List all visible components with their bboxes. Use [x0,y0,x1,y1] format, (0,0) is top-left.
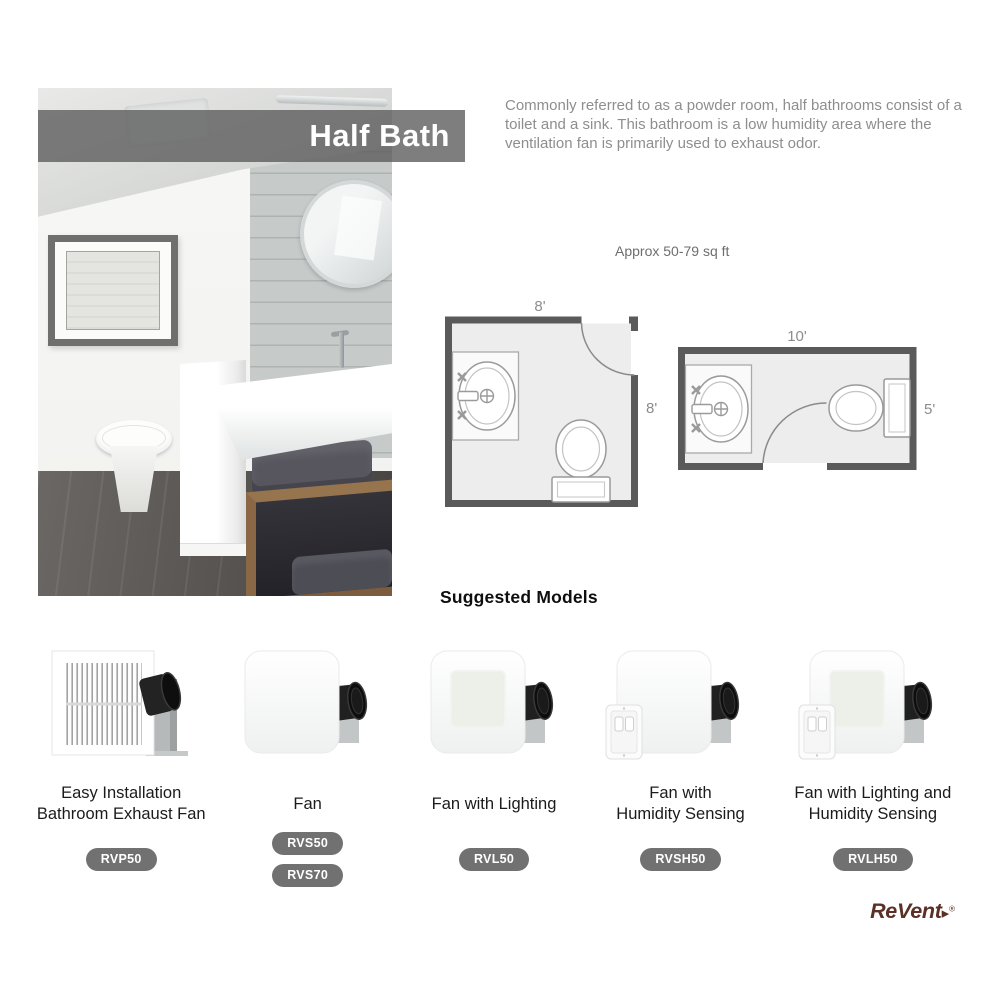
product-name: Fan [293,781,321,827]
model-badge: RVS70 [272,864,343,887]
floorplan-narrow: 10' 5' [678,328,935,470]
model-badge: RVP50 [86,848,157,871]
floorplan-square: 8' 8' [445,298,657,507]
product-row: Easy Installation Bathroom Exhaust Fan R… [28,645,972,889]
product-name: Easy Installation Bathroom Exhaust Fan [37,781,206,827]
revent-logo: ReVent▸® [820,899,955,924]
humidity-switch-icon [799,705,835,759]
model-badge: RVLH50 [833,848,913,871]
product-name: Fan with Lighting [432,781,557,827]
model-badges: RVP50 [86,829,157,889]
towel [292,549,392,596]
product-name: Fan with Lighting and Humidity Sensing [794,781,951,827]
product-card: Easy Installation Bathroom Exhaust Fan R… [28,645,214,889]
wood-shelf [246,470,392,596]
plan1-width-label: 8' [534,298,545,315]
humidity-switch-icon [606,705,642,759]
grille-fan-image [46,645,196,777]
toilet-symbol [552,420,610,502]
model-badges: RVLH50 [833,829,913,889]
cover-fan-humidity-image [605,645,755,777]
plan2-width-label: 10' [787,328,807,345]
product-name: Fan with Humidity Sensing [616,781,744,827]
cover-fan-image [233,645,383,777]
size-note: Approx 50-79 sq ft [615,243,729,259]
model-badge: RVL50 [459,848,529,871]
section-title: Suggested Models [440,587,598,608]
plan2-depth-label: 5' [924,401,935,418]
light-panel-icon [830,671,884,727]
model-badges: RVS50 RVS70 [272,829,343,889]
brand-name: ReVent [870,899,941,923]
cover-fan-light-image [419,645,569,777]
sink-symbol [453,352,519,440]
model-badges: RVSH50 [640,829,720,889]
bathroom-photo [38,88,392,596]
arrow-icon: ▸ [942,905,950,922]
framed-art [48,235,178,346]
model-badge: RVSH50 [640,848,720,871]
page-title: Half Bath [309,118,450,154]
faucet-icon [339,332,344,368]
intro-paragraph: Commonly referred to as a powder room, h… [505,96,973,153]
registered-mark: ® [949,905,955,914]
sink-symbol [686,365,752,453]
light-panel-icon [451,671,505,727]
model-badge: RVS50 [272,832,343,855]
product-card: Fan with Lighting RVL50 [401,645,587,889]
model-badges: RVL50 [459,829,529,889]
product-card: Fan with Lighting and Humidity Sensing R… [774,645,972,889]
product-card: Fan with Humidity Sensing RVSH50 [587,645,773,889]
product-card: Fan RVS50 RVS70 [214,645,400,889]
plan1-depth-label: 8' [646,400,657,417]
floorplan-diagrams: 8' 8' 10' 5' [430,295,940,520]
cover-fan-light-humidity-image [798,645,948,777]
half-bath-banner: Half Bath [38,110,465,162]
